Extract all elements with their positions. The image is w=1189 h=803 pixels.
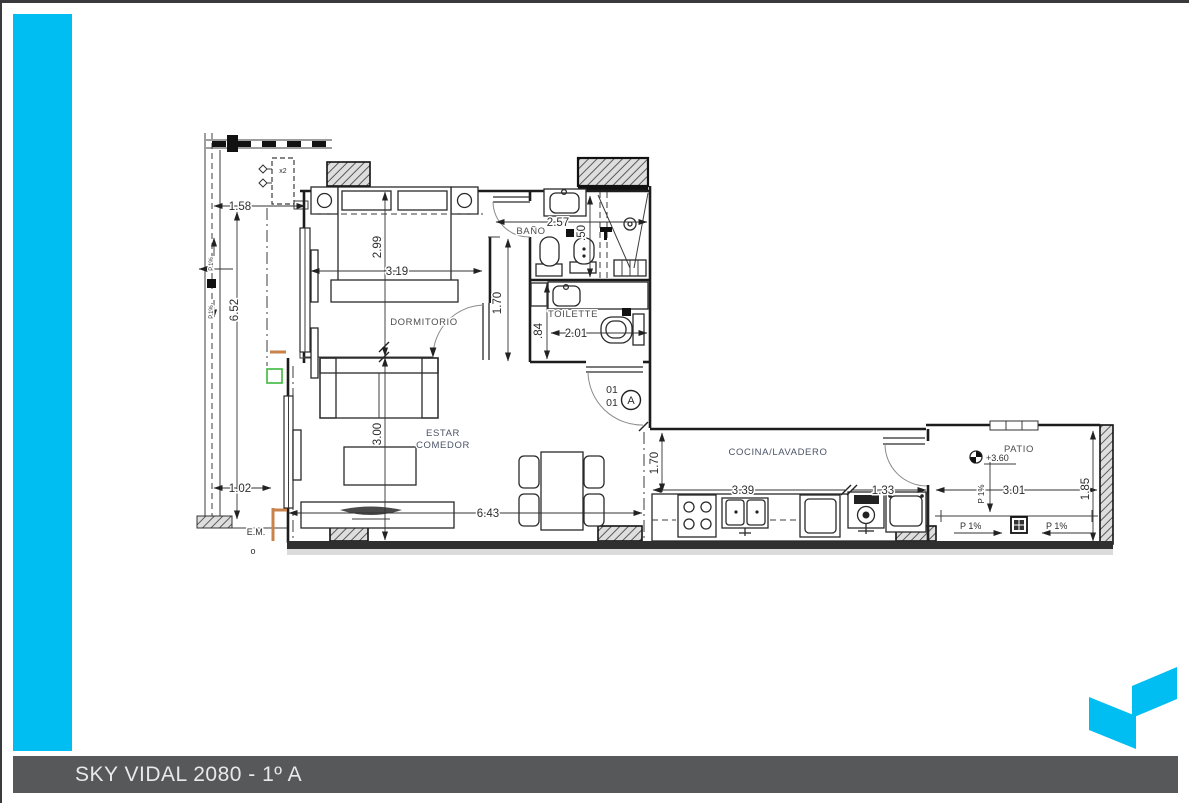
fixtures-bano xyxy=(536,189,648,278)
label-em: E.M. xyxy=(247,527,266,537)
label-cocina-lavadero: COCINA/LAVADERO xyxy=(729,447,828,458)
balcony-drain xyxy=(207,279,216,288)
label-balcony-slope-1: P.1% xyxy=(209,257,215,271)
section-marker: 01 01 A xyxy=(606,384,640,410)
brand-logo xyxy=(1085,663,1181,755)
coffee-table xyxy=(344,447,416,485)
label-estar: ESTAR xyxy=(426,428,460,439)
dormitorio-door xyxy=(433,303,489,360)
dim-balcony-width: 1.58 xyxy=(229,201,251,213)
patio-door xyxy=(883,438,927,486)
page: 1.58 6.52 1.02 2.99 3.19 1.70 2.57 .50 .… xyxy=(0,0,1189,803)
bottom-exterior-wall xyxy=(287,541,1113,549)
label-slope-down: P 1% xyxy=(977,485,986,504)
floor-drain xyxy=(1011,517,1027,533)
dim-bano-width: 2.57 xyxy=(547,217,569,229)
dim-cocina-depth: 1.70 xyxy=(649,452,661,474)
fixtures-cocina xyxy=(652,492,928,541)
floor-plan: 1.58 6.52 1.02 2.99 3.19 1.70 2.57 .50 .… xyxy=(0,0,1189,803)
footer-title-bar: SKY VIDAL 2080 - 1º A xyxy=(13,756,1178,793)
tv-console xyxy=(301,502,454,528)
logo-left-shape xyxy=(1089,697,1136,749)
label-balcony-slope-2: P.1% xyxy=(209,305,215,319)
label-slope-left: P 1% xyxy=(960,521,981,531)
dim-estar-depth: 3.00 xyxy=(372,423,384,445)
stove xyxy=(678,495,716,537)
dim-balcony-end: 1.02 xyxy=(229,483,251,495)
logo-right-shape xyxy=(1132,667,1177,718)
dim-patio-depth: 1.85 xyxy=(1080,478,1092,500)
laundry-tub xyxy=(886,492,926,532)
room-labels: DORMITORIO BAÑO TOILETTE ESTAR COMEDOR C… xyxy=(390,226,1034,458)
dim-shower-width: .50 xyxy=(576,225,588,241)
sofa xyxy=(320,358,438,418)
dim-cocina-width: 3.39 xyxy=(732,485,754,497)
dim-hall-height: 1.70 xyxy=(492,292,504,314)
ac-condenser-units xyxy=(259,158,308,209)
dim-patio-width: 3.01 xyxy=(1003,485,1025,497)
dim-dorm-depth: 2.99 xyxy=(372,236,384,258)
furniture-dormitorio xyxy=(311,187,483,302)
washing-machine xyxy=(848,492,884,534)
kitchen-sink xyxy=(722,498,768,536)
dining-table xyxy=(519,452,604,530)
section-letter: A xyxy=(627,395,635,407)
label-bano: BAÑO xyxy=(516,226,545,237)
dim-toilette-depth: .84 xyxy=(533,322,545,339)
dim-lavadero-width: 1.33 xyxy=(872,485,894,497)
label-small-o: o xyxy=(250,546,255,556)
label-ac-units: x2 xyxy=(279,168,287,175)
fridge xyxy=(800,495,840,537)
dim-estar-width: 6.43 xyxy=(477,508,499,520)
shower xyxy=(598,192,648,278)
label-level: +3.60 xyxy=(986,453,1009,463)
label-comedor: COMEDOR xyxy=(416,440,470,451)
dim-toilette-width: 2.01 xyxy=(565,328,587,340)
dim-dorm-width: 3.19 xyxy=(386,266,408,278)
section-num-bottom: 01 xyxy=(606,397,618,409)
label-dormitorio: DORMITORIO xyxy=(390,317,458,328)
label-slope-right: P 1% xyxy=(1046,521,1067,531)
toilet xyxy=(540,237,559,266)
green-marker xyxy=(267,369,282,383)
label-toilette: TOILETTE xyxy=(548,309,598,320)
page-title: SKY VIDAL 2080 - 1º A xyxy=(13,763,302,787)
dim-balcony-length: 6.52 xyxy=(229,299,241,321)
section-num-top: 01 xyxy=(606,384,618,396)
doors xyxy=(433,197,927,486)
